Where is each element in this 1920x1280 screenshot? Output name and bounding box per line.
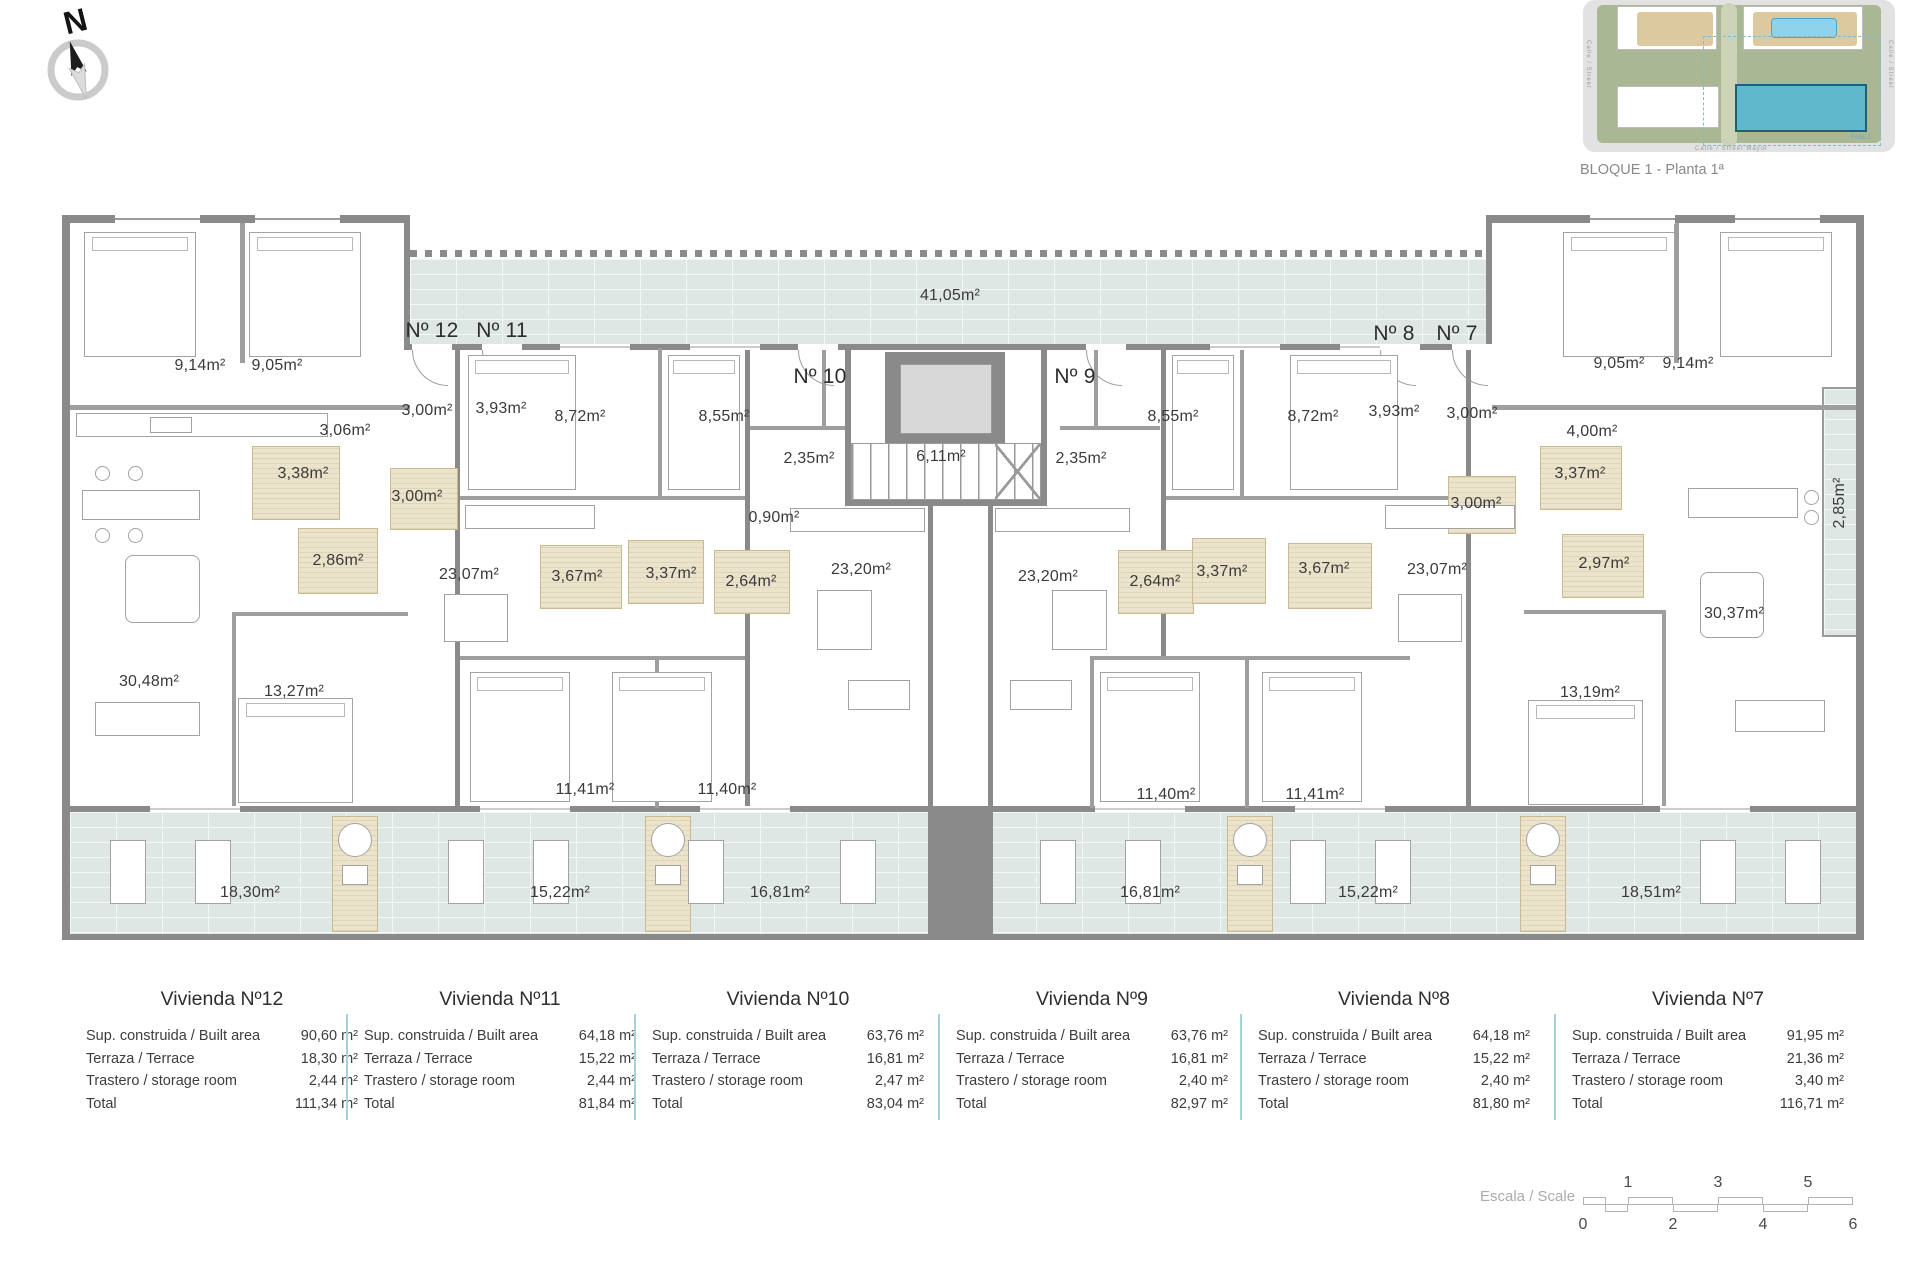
wall-wing-right-inner (1486, 265, 1492, 350)
room-area-label: 11,41m² (1286, 786, 1345, 804)
scale-segment (1605, 1204, 1628, 1212)
row-value: 2,47 m² (875, 1070, 924, 1093)
room-area-label: 2,85m² (1831, 478, 1849, 529)
table-divider (938, 1014, 940, 1120)
room-area-label: 3,37m² (646, 565, 697, 583)
kitchen-counter (995, 508, 1130, 532)
furniture-bed (1720, 232, 1832, 357)
row-value: 16,81 m² (1171, 1048, 1228, 1071)
row-label: Trastero / storage room (364, 1070, 515, 1093)
scale-number: 4 (1759, 1216, 1768, 1234)
row-label: Total (364, 1093, 395, 1116)
room-area-label: 3,67m² (1299, 560, 1350, 578)
bar-stool (128, 466, 143, 481)
wall-bedpair-bottom-left (460, 496, 745, 500)
vivienda-table-row: Sup. construida / Built area63,76 m² (956, 1025, 1228, 1048)
row-label: Trastero / storage room (86, 1070, 237, 1093)
sliding-door (150, 806, 240, 812)
room-area-label: 3,67m² (552, 568, 603, 586)
row-value: 81,84 m² (579, 1093, 636, 1116)
room-area-label: 9,05m² (252, 357, 303, 375)
room-area-label: 23,07m² (439, 566, 499, 584)
room-area-label: 30,48m² (119, 673, 179, 691)
table-divider (634, 1014, 636, 1120)
vivienda-table-row: Sup. construida / Built area64,18 m² (364, 1025, 636, 1048)
furniture-bed (84, 232, 196, 357)
row-value: 116,71 m² (1780, 1093, 1844, 1116)
vivienda-table-title: Vivienda Nº9 (956, 988, 1228, 1011)
sun-lounger (840, 840, 876, 904)
scale-number: 0 (1579, 1216, 1588, 1234)
water-heater-icon (1526, 823, 1560, 857)
kitchen-island (1688, 488, 1798, 518)
room-area-label: 3,06m² (320, 422, 371, 440)
furniture-bed (1262, 672, 1362, 802)
room-area-label: 18,51m² (1621, 884, 1681, 902)
sliding-door (1295, 806, 1385, 812)
sliding-door (700, 806, 790, 812)
row-label: Sup. construida / Built area (1258, 1025, 1432, 1048)
site-plan-minimap: Calle / Street Mayor FASE 1 Calle / Stre… (1575, 0, 1905, 158)
room-area-label: 11,40m² (1137, 786, 1196, 804)
row-value: 2,40 m² (1481, 1070, 1530, 1093)
vivienda-table-row: Trastero / storage room2,44 m² (364, 1070, 636, 1093)
room-area-label: 3,93m² (1369, 403, 1420, 421)
sun-lounger (110, 840, 146, 904)
storage-unit (342, 865, 368, 885)
dining-table (444, 594, 508, 642)
scale-segment (1673, 1204, 1718, 1212)
vivienda-table: Vivienda Nº8Sup. construida / Built area… (1258, 988, 1530, 1115)
row-value: 2,40 m² (1179, 1070, 1228, 1093)
kitchen-sink-icon (150, 417, 192, 433)
row-label: Sup. construida / Built area (1572, 1025, 1746, 1048)
dining-table (1052, 590, 1107, 650)
room-area-label: 18,30m² (220, 884, 280, 902)
row-label: Trastero / storage room (652, 1070, 803, 1093)
room-area-label: 16,81m² (750, 884, 810, 902)
furniture-bed (1563, 232, 1675, 357)
sofa (95, 702, 200, 736)
vivienda-table-row: Terraza / Terrace15,22 m² (1258, 1048, 1530, 1071)
wall-walkway-stub-left (404, 215, 410, 265)
scale-segment (1718, 1197, 1763, 1205)
dining-table (1398, 594, 1462, 642)
room-area-label: 2,35m² (784, 450, 835, 468)
vivienda-table-row: Total81,84 m² (364, 1093, 636, 1116)
room-area-label: 11,40m² (698, 781, 757, 799)
row-value: 91,95 m² (1787, 1025, 1844, 1048)
row-label: Total (1572, 1093, 1603, 1116)
room-area-label: 23,20m² (1018, 568, 1078, 586)
wall-shaft-right (988, 506, 993, 806)
wall-bed12-v (232, 612, 236, 812)
row-value: 83,04 m² (867, 1093, 924, 1116)
water-heater-icon (1233, 823, 1267, 857)
sliding-door (1095, 806, 1185, 812)
row-value: 63,76 m² (867, 1025, 924, 1048)
scale-number: 2 (1669, 1216, 1678, 1234)
window (690, 344, 760, 350)
row-value: 63,76 m² (1171, 1025, 1228, 1048)
room-area-label: 8,55m² (1148, 408, 1199, 426)
room-area-label: 13,27m² (264, 683, 324, 701)
minimap-sand-deck (1637, 12, 1713, 46)
wall-entry9-h (1060, 426, 1160, 430)
row-value: 64,18 m² (579, 1025, 636, 1048)
wall-right (1856, 215, 1864, 940)
room-area-label: Nº 8 (1373, 322, 1414, 346)
vivienda-table-row: Total83,04 m² (652, 1093, 924, 1116)
bar-stool (1804, 510, 1819, 525)
room-area-label: 15,22m² (1338, 884, 1398, 902)
scale-number: 6 (1849, 1216, 1858, 1234)
row-label: Terraza / Terrace (364, 1048, 473, 1071)
sliding-door (480, 806, 570, 812)
furniture-bed (1528, 700, 1643, 805)
wall-bed7-v (1662, 610, 1666, 812)
wall-entry10-h (750, 426, 850, 430)
floorplan-page: N Calle / Street Mayor FASE 1 Calle / St… (0, 0, 1920, 1280)
room-area-label: 41,05m² (920, 287, 980, 305)
minimap-highlighted-block-1 (1735, 84, 1867, 132)
vivienda-table-row: Sup. construida / Built area90,60 m² (86, 1025, 358, 1048)
room-area-label: 13,19m² (1560, 684, 1620, 702)
table-divider (1554, 1014, 1556, 1120)
wall-bed7-h (1524, 610, 1666, 614)
bar-stool (95, 528, 110, 543)
room-area-label: 9,14m² (175, 357, 226, 375)
vivienda-table-row: Terraza / Terrace15,22 m² (364, 1048, 636, 1071)
window (1735, 214, 1820, 224)
vivienda-table: Vivienda Nº9Sup. construida / Built area… (956, 988, 1228, 1115)
sun-lounger (688, 840, 724, 904)
core-terrace-block (928, 812, 993, 934)
sofa (1010, 680, 1072, 710)
row-value: 18,30 m² (301, 1048, 358, 1071)
wall-core-bottom (845, 500, 1047, 506)
minimap-street-left-label: Calle / Street (1585, 40, 1591, 89)
wall-lowerbeds-top-left (460, 656, 745, 660)
room-area-label: 3,37m² (1197, 563, 1248, 581)
row-value: 3,40 m² (1795, 1070, 1844, 1093)
kitchen-counter (465, 505, 595, 529)
window (1590, 214, 1675, 224)
scale-bar: Escala / Scale 1350246 (1480, 1158, 1880, 1242)
room-area-label: 0,90m² (749, 509, 800, 527)
vivienda-table-row: Total82,97 m² (956, 1093, 1228, 1116)
room-area-label: Nº 7 (1436, 322, 1477, 346)
vivienda-table: Vivienda Nº12Sup. construida / Built are… (86, 988, 358, 1115)
wall-lowerbeds-div-right (1245, 656, 1249, 808)
plan-caption: BLOQUE 1 - Planta 1ª (1580, 162, 1724, 178)
row-value: 111,34 m² (295, 1093, 358, 1116)
sun-lounger (1785, 840, 1821, 904)
door-swing (412, 350, 448, 386)
row-value: 90,60 m² (301, 1025, 358, 1048)
elevator-car (900, 364, 992, 434)
kitchen-island (82, 490, 200, 520)
kitchen-counter (790, 508, 925, 532)
kitchen-counter (76, 413, 328, 437)
sun-lounger (1040, 840, 1076, 904)
wall-bedpair-divider-left (658, 348, 662, 498)
sofa (848, 680, 910, 710)
wall-shaft-left (928, 506, 933, 806)
storage-unit (655, 865, 681, 885)
walkway-railing (410, 250, 1486, 257)
scale-segment (1808, 1197, 1853, 1205)
wall-lowerbeds-top-right (1090, 656, 1410, 660)
room-area-label: 3,37m² (1555, 465, 1606, 483)
wall-bedpair-bottom-right (1166, 496, 1466, 500)
row-label: Total (652, 1093, 683, 1116)
water-heater-icon (338, 823, 372, 857)
sliding-door (1660, 806, 1750, 812)
room-area-label: 16,81m² (1120, 884, 1180, 902)
storage-room-1 (332, 816, 378, 932)
row-value: 21,36 m² (1787, 1048, 1844, 1071)
storage-room-2 (645, 816, 691, 932)
storage-unit (1237, 865, 1263, 885)
sofa (1735, 700, 1825, 732)
room-area-label: 3,93m² (476, 400, 527, 418)
vivienda-table: Vivienda Nº7Sup. construida / Built area… (1572, 988, 1844, 1115)
wall-bedblock-right-wing (1492, 405, 1856, 410)
room-area-label: 15,22m² (530, 884, 590, 902)
room-area-label: 3,38m² (278, 465, 329, 483)
vivienda-table-row: Total111,34 m² (86, 1093, 358, 1116)
table-divider (1240, 1014, 1242, 1120)
row-value: 15,22 m² (579, 1048, 636, 1071)
vivienda-table: Vivienda Nº10Sup. construida / Built are… (652, 988, 924, 1115)
storage-room-4 (1520, 816, 1566, 932)
row-label: Sup. construida / Built area (652, 1025, 826, 1048)
vivienda-table-row: Trastero / storage room3,40 m² (1572, 1070, 1844, 1093)
row-label: Terraza / Terrace (1258, 1048, 1367, 1071)
wall-bedblock-left-wing (70, 405, 410, 410)
minimap-street-mayor-label: Calle / Street Mayor (1695, 146, 1768, 152)
room-area-label: 30,37m² (1704, 605, 1764, 623)
wall-bedpair-divider-right (1240, 348, 1244, 498)
vivienda-table-row: Total116,71 m² (1572, 1093, 1844, 1116)
dining-table (817, 590, 872, 650)
dining-table (125, 555, 200, 623)
bathroom-3-38 (252, 446, 340, 520)
room-area-label: 8,55m² (699, 408, 750, 426)
scale-number: 1 (1624, 1174, 1633, 1192)
row-value: 81,80 m² (1473, 1093, 1530, 1116)
row-label: Terraza / Terrace (1572, 1048, 1681, 1071)
door-swing (1452, 350, 1488, 386)
room-area-label: 3,00m² (392, 488, 443, 506)
room-area-label: 2,35m² (1056, 450, 1107, 468)
table-divider (346, 1014, 348, 1120)
minimap-pool (1771, 18, 1837, 38)
scale-number: 3 (1714, 1174, 1723, 1192)
row-value: 2,44 m² (587, 1070, 636, 1093)
vivienda-table-title: Vivienda Nº11 (364, 988, 636, 1011)
scale-segment (1628, 1197, 1673, 1205)
storage-unit (1530, 865, 1556, 885)
vivienda-table-row: Terraza / Terrace16,81 m² (956, 1048, 1228, 1071)
row-label: Trastero / storage room (956, 1070, 1107, 1093)
furniture-bed (238, 698, 353, 803)
room-area-label: 6,11m² (916, 448, 966, 466)
scale-segment (1583, 1197, 1606, 1205)
vivienda-table-row: Sup. construida / Built area91,95 m² (1572, 1025, 1844, 1048)
scale-label: Escala / Scale (1480, 1188, 1575, 1205)
room-area-label: 2,97m² (1579, 555, 1630, 573)
sun-lounger (1700, 840, 1736, 904)
room-area-label: 8,72m² (1288, 408, 1339, 426)
wall-lowerbeds-edge-right (1090, 656, 1094, 808)
vivienda-table-row: Trastero / storage room2,44 m² (86, 1070, 358, 1093)
vivienda-table-row: Sup. construida / Built area64,18 m² (1258, 1025, 1530, 1048)
vivienda-table-title: Vivienda Nº10 (652, 988, 924, 1011)
row-label: Trastero / storage room (1572, 1070, 1723, 1093)
furniture-bed (1100, 672, 1200, 802)
vivienda-table: Vivienda Nº11Sup. construida / Built are… (364, 988, 636, 1115)
room-area-label: Nº 11 (476, 319, 527, 343)
vivienda-table-row: Terraza / Terrace21,36 m² (1572, 1048, 1844, 1071)
minimap-street-right-label: Calle / Street (1887, 40, 1893, 89)
furniture-bed (249, 232, 361, 357)
row-value: 2,44 m² (309, 1070, 358, 1093)
water-heater-icon (651, 823, 685, 857)
wall-core-right (1041, 348, 1047, 506)
scale-number: 5 (1804, 1174, 1813, 1192)
room-area-label: Nº 9 (1054, 365, 1095, 389)
row-value: 16,81 m² (867, 1048, 924, 1071)
room-area-label: 9,14m² (1663, 355, 1714, 373)
wall-left (62, 215, 70, 940)
room-area-label: 3,00m² (402, 402, 453, 420)
row-label: Terraza / Terrace (956, 1048, 1065, 1071)
room-area-label: 2,64m² (1130, 573, 1181, 591)
bar-stool (95, 466, 110, 481)
room-area-label: 2,86m² (313, 552, 364, 570)
row-value: 15,22 m² (1473, 1048, 1530, 1071)
compass-rose-icon: N (36, 2, 124, 110)
row-label: Total (956, 1093, 987, 1116)
vivienda-table-row: Total81,80 m² (1258, 1093, 1530, 1116)
vivienda-table-title: Vivienda Nº8 (1258, 988, 1530, 1011)
compass-north-letter: N (60, 2, 91, 41)
vivienda-table-row: Terraza / Terrace18,30 m² (86, 1048, 358, 1071)
wall-bed-divider-left-wing (240, 223, 245, 363)
room-area-label: 11,41m² (556, 781, 615, 799)
wall-bed12-h (232, 612, 408, 616)
room-area-label: 23,07m² (1407, 561, 1467, 579)
window (115, 214, 200, 224)
vivienda-table-title: Vivienda Nº7 (1572, 988, 1844, 1011)
row-label: Total (1258, 1093, 1289, 1116)
row-value: 64,18 m² (1473, 1025, 1530, 1048)
room-area-label: 8,72m² (555, 408, 606, 426)
row-label: Terraza / Terrace (86, 1048, 195, 1071)
row-label: Trastero / storage room (1258, 1070, 1409, 1093)
window (560, 344, 630, 350)
vivienda-summary-tables: Vivienda Nº12Sup. construida / Built are… (0, 988, 1920, 1148)
window (1210, 344, 1280, 350)
room-area-label: 3,00m² (1447, 405, 1498, 423)
row-label: Sup. construida / Built area (86, 1025, 260, 1048)
room-area-label: 3,00m² (1451, 495, 1502, 513)
vivienda-table-row: Terraza / Terrace16,81 m² (652, 1048, 924, 1071)
storage-room-3 (1227, 816, 1273, 932)
room-area-label: 2,64m² (726, 573, 777, 591)
sun-lounger (448, 840, 484, 904)
window (255, 214, 340, 224)
row-label: Sup. construida / Built area (956, 1025, 1130, 1048)
vivienda-table-row: Trastero / storage room2,40 m² (956, 1070, 1228, 1093)
vivienda-table-row: Trastero / storage room2,40 m² (1258, 1070, 1530, 1093)
vivienda-table-row: Sup. construida / Built area63,76 m² (652, 1025, 924, 1048)
staircase-break-mark (995, 444, 1040, 499)
vivienda-table-title: Vivienda Nº12 (86, 988, 358, 1011)
bar-stool (1804, 490, 1819, 505)
bar-stool (128, 528, 143, 543)
scale-segment (1763, 1204, 1808, 1212)
room-area-label: Nº 10 (793, 365, 846, 389)
room-area-label: 4,00m² (1567, 423, 1618, 441)
row-value: 82,97 m² (1171, 1093, 1228, 1116)
row-label: Terraza / Terrace (652, 1048, 761, 1071)
wall-walkway-stub-right (1486, 215, 1492, 265)
vivienda-table-row: Trastero / storage room2,47 m² (652, 1070, 924, 1093)
row-label: Sup. construida / Built area (364, 1025, 538, 1048)
sun-lounger (1290, 840, 1326, 904)
room-area-label: 23,20m² (831, 561, 891, 579)
room-area-label: Nº 12 (405, 319, 458, 343)
row-label: Total (86, 1093, 117, 1116)
wall-bottom (62, 934, 1864, 940)
room-area-label: 9,05m² (1594, 355, 1645, 373)
minimap-fase-label: FASE 1 (1851, 135, 1871, 141)
